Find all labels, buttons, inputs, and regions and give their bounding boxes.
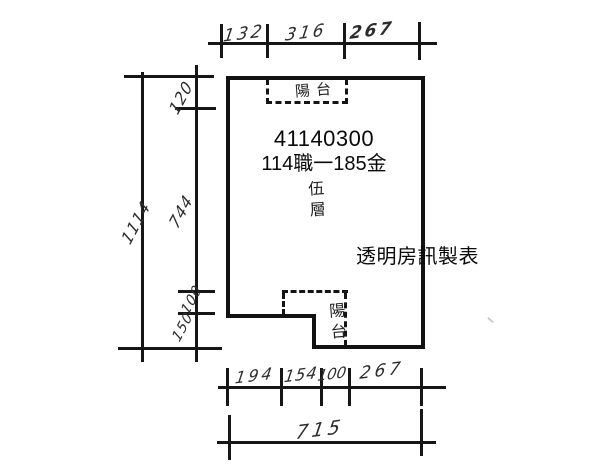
bottom-balcony-label: 陽 台 — [326, 299, 351, 342]
bottom-dim-line — [218, 386, 446, 389]
left-dim-label: 120 — [164, 74, 198, 121]
floor-label-char: 伍 — [308, 177, 325, 199]
floor-plan-canvas: 132 316 267 120 744 100 150 1114 陽台 陽 台 — [0, 0, 601, 475]
floor-label: 伍 層 — [302, 177, 333, 221]
wall-left — [226, 76, 230, 318]
top-dim-tick — [266, 24, 269, 58]
top-dim-label: 267 — [342, 17, 403, 45]
bottom-balcony-dash-top — [282, 290, 348, 293]
wall-bottom — [312, 345, 425, 349]
bottom-balcony-dash-left — [282, 293, 285, 315]
left-dim-label: 744 — [164, 188, 198, 235]
bottom-dim-label: 100 — [311, 362, 354, 385]
scan-speck — [487, 317, 494, 323]
bottom-dim-tick — [420, 368, 423, 406]
left-dim-tick — [118, 347, 222, 350]
case-label: 114職一185金 — [252, 147, 396, 176]
wall-step-vertical — [312, 314, 316, 349]
bottom-balcony-char: 台 — [330, 320, 347, 342]
left-dim-tick — [124, 75, 214, 78]
bottom-total-tick — [420, 409, 423, 456]
wall-mid-step — [226, 314, 316, 318]
watermark-text: 透明房訊製表 — [356, 240, 479, 269]
floor-label-char: 層 — [309, 198, 326, 220]
bottom-total-tick — [228, 415, 231, 460]
top-balcony-label: 陽台 — [290, 77, 341, 101]
wall-right — [421, 76, 425, 349]
bottom-balcony-char: 陽 — [329, 299, 346, 321]
bottom-total-line — [217, 441, 436, 444]
left-dim-total-label: 1114 — [116, 193, 157, 253]
bottom-dim-label: 194 — [229, 363, 282, 389]
bottom-dim-label: 267 — [354, 357, 411, 384]
top-dim-tick — [418, 22, 421, 60]
